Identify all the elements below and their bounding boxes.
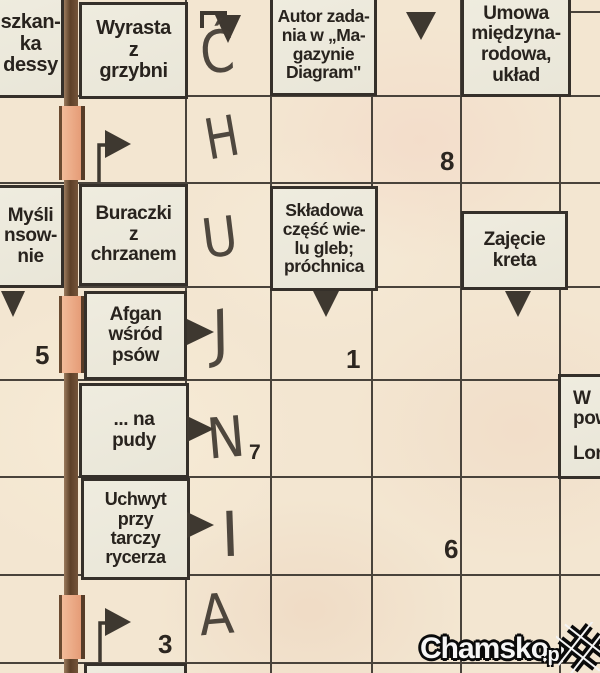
crossword-scan: szkan-kadessy Wyrastazgrzybni Autor zada… [0, 0, 600, 673]
clue-line: chrzanem [91, 245, 177, 266]
clue-line: międzyna- [471, 24, 560, 45]
clue-line: próchnica [284, 257, 364, 276]
cell-number-8: 8 [440, 146, 454, 177]
cell-number-7: 7 [249, 441, 261, 465]
handwritten-letter-u: U [198, 204, 241, 271]
clue-fragment: Wpow [573, 389, 600, 430]
clue-line: Buraczki [95, 204, 171, 225]
clue-right-edge-partial: Wpow Lon [558, 374, 600, 479]
grid-line [559, 0, 561, 673]
clue-line: kreta [493, 251, 536, 272]
clue-skladowa-czesc-gleb: Składowaczęść wie-lu gleb;próchnica [270, 186, 378, 291]
clue-wyrasta-z-grzybni: Wyrastazgrzybni [79, 2, 188, 99]
clue-line: lu gleb; [294, 239, 353, 258]
clue-line: Uchwyt [105, 490, 167, 509]
clue-umowa-miedzynarodowa: Umowamiędzyna-rodowa,układ [461, 0, 571, 97]
clue-line: pudy [112, 431, 156, 452]
clue-line: Zajęcie [484, 230, 546, 251]
watermark-logo: Chamsko .pl [416, 624, 600, 673]
cell-number-3: 3 [158, 629, 172, 660]
watermark-brand: Chamsko [420, 632, 548, 666]
watermark-hash-icon [556, 622, 600, 673]
flag-arrow-icon [94, 126, 136, 184]
down-arrow-icon [503, 290, 533, 319]
grid-line [371, 0, 373, 673]
clue-line: nie [17, 247, 43, 268]
fold-strip-segment [59, 296, 85, 373]
clue-line: układ [492, 66, 540, 87]
clue-line: rycerza [105, 548, 165, 567]
clue-na-pudy: ... napudy [79, 383, 189, 478]
clue-line: ka [20, 34, 41, 56]
clue-line: psów [112, 346, 159, 367]
fold-strip-segment [59, 595, 85, 659]
clue-line: z [129, 40, 139, 62]
clue-mysli-partial: Myślinsow-nie [0, 185, 64, 288]
clue-line: część wie- [283, 220, 366, 239]
clue-line: ... na [114, 410, 155, 431]
down-arrow-icon [404, 10, 438, 42]
down-arrow-icon [311, 290, 341, 319]
clue-line: gazynie [293, 45, 354, 64]
clue-line: tarczy [111, 529, 161, 548]
clue-line: Myśli [8, 206, 54, 227]
grid-line [460, 0, 462, 673]
handwritten-letter-i: I [220, 498, 241, 572]
clue-line: z [129, 225, 138, 246]
grid-line [270, 0, 272, 673]
clue-line: nsow- [4, 226, 57, 247]
clue-fragment: Lon [573, 444, 600, 465]
down-arrow-icon [0, 289, 28, 319]
handwritten-letter-n: N [204, 404, 247, 472]
clue-autor-zadania: Autor zada-nia w „Ma-gazynieDiagram" [270, 0, 377, 96]
cell-number-5: 5 [35, 340, 49, 371]
clue-buraczki-z-chrzanem: Buraczkizchrzanem [79, 184, 188, 286]
clue-top-left-partial: szkan-kadessy [0, 0, 64, 98]
handwritten-letter-h: H [200, 104, 244, 174]
clue-line: Wyrasta [96, 18, 171, 40]
cell-number-6: 6 [444, 534, 458, 565]
clue-line: nia w „Ma- [282, 26, 366, 45]
right-arrow-icon [186, 510, 216, 540]
cell-number-1: 1 [346, 344, 360, 375]
fold-strip-segment [59, 106, 85, 180]
clue-line: dessy [3, 55, 58, 77]
clue-line: przy [118, 510, 153, 529]
clue-line: szkan- [1, 12, 61, 34]
clue-bottom-partial [84, 663, 187, 673]
clue-line: Afgan [110, 305, 162, 326]
clue-line: Umowa [483, 4, 549, 25]
clue-line: rodowa, [481, 45, 551, 66]
clue-afgan-wsrod-psow: Afganwśródpsów [84, 291, 187, 380]
clue-line: Autor zada- [278, 7, 370, 26]
handwritten-letter-a: A [196, 582, 236, 650]
clue-line: wśród [109, 325, 163, 346]
clue-line: W [573, 389, 600, 410]
clue-line: Składowa [285, 201, 363, 220]
clue-line: pow [573, 409, 600, 430]
clue-line: grzybni [99, 61, 167, 83]
clue-uchwyt-tarczy-rycerza: Uchwytprzytarczyrycerza [81, 478, 190, 580]
flag-arrow-icon [96, 596, 138, 664]
clue-line: Lon [573, 444, 600, 465]
clue-zajecie-kreta: Zajęciekreta [461, 211, 568, 290]
handwritten-letter-c: Ć [198, 17, 237, 87]
clue-line: Diagram" [286, 63, 361, 82]
